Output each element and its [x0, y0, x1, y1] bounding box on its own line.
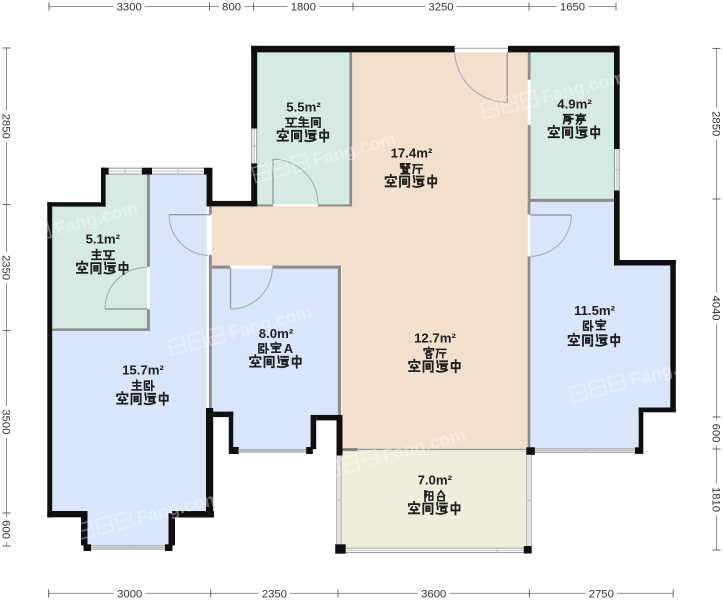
svg-text:1810: 1810	[709, 487, 721, 512]
svg-text:5.1m²: 5.1m²	[86, 232, 121, 247]
svg-text:3000: 3000	[117, 588, 142, 600]
svg-text:3300: 3300	[117, 2, 142, 14]
svg-text:2850: 2850	[0, 114, 11, 139]
svg-text:800: 800	[222, 2, 241, 14]
svg-text:3500: 3500	[0, 409, 11, 434]
svg-text:2350: 2350	[0, 255, 11, 280]
svg-text:1800: 1800	[291, 2, 316, 14]
svg-text:A: A	[284, 341, 294, 356]
svg-text:2750: 2750	[589, 588, 614, 600]
svg-text:2350: 2350	[262, 588, 287, 600]
svg-text:12.7m²: 12.7m²	[414, 330, 456, 345]
svg-text:1650: 1650	[560, 2, 585, 14]
svg-text:11.5m²: 11.5m²	[574, 303, 616, 318]
svg-text:4040: 4040	[709, 295, 721, 320]
svg-text:600: 600	[0, 520, 11, 539]
svg-text:3250: 3250	[428, 2, 453, 14]
svg-text:5.5m²: 5.5m²	[286, 99, 321, 114]
svg-text:3600: 3600	[421, 588, 446, 600]
svg-text:600: 600	[709, 424, 721, 443]
svg-text:2850: 2850	[709, 111, 721, 136]
svg-text:15.7m²: 15.7m²	[122, 362, 164, 377]
svg-text:7.0m²: 7.0m²	[418, 473, 453, 488]
